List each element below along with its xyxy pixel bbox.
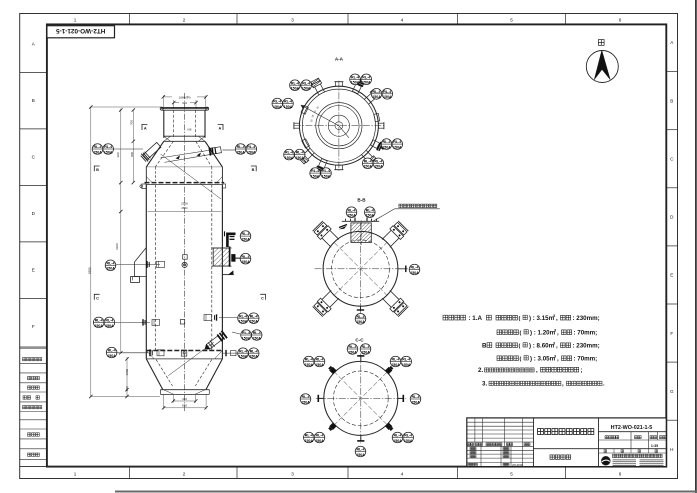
svg-text:H: H <box>670 447 673 452</box>
svg-text:3: 3 <box>553 341 555 345</box>
svg-text:;: ; <box>581 368 583 374</box>
svg-text:: 70mm;: : 70mm; <box>574 330 598 337</box>
svg-text:) : 3.15m: ) : 3.15m <box>529 315 555 322</box>
svg-text:) : 8.60m: ) : 8.60m <box>529 343 555 350</box>
svg-text:E: E <box>670 273 673 278</box>
svg-text:3: 3 <box>554 328 556 332</box>
svg-text:(: ( <box>520 331 522 337</box>
svg-text:390: 390 <box>116 152 120 157</box>
svg-text:3.: 3. <box>482 381 487 388</box>
svg-text:: 1.A: : 1.A <box>469 315 483 322</box>
svg-text:(: ( <box>520 357 522 363</box>
svg-text:5: 5 <box>510 471 513 476</box>
svg-text:M8: M8 <box>188 128 192 132</box>
svg-text:: 230mm;: : 230mm; <box>573 343 600 350</box>
svg-text:) : 1.20m: ) : 1.20m <box>530 330 556 337</box>
svg-text:2: 2 <box>183 471 186 476</box>
svg-text:4: 4 <box>401 471 404 476</box>
svg-text:1:35: 1:35 <box>651 444 658 448</box>
svg-text:) : 3.05m: ) : 3.05m <box>530 356 556 363</box>
svg-text:5: 5 <box>510 18 513 23</box>
svg-text:3: 3 <box>554 354 556 358</box>
svg-text:C: C <box>96 297 99 301</box>
svg-text:3: 3 <box>291 471 294 476</box>
svg-text:(: ( <box>519 344 521 350</box>
svg-text:B: B <box>670 98 673 103</box>
svg-text:800: 800 <box>130 152 134 157</box>
svg-text:700: 700 <box>130 120 134 125</box>
svg-text:C: C <box>261 297 264 301</box>
svg-text:8555: 8555 <box>88 267 92 274</box>
svg-text:B: B <box>252 168 255 172</box>
svg-text:430: 430 <box>182 397 187 401</box>
svg-text:430: 430 <box>182 101 187 105</box>
svg-text:,: , <box>556 315 558 322</box>
svg-text:,: , <box>556 343 558 350</box>
svg-text:A: A <box>219 127 222 131</box>
svg-text:2013006: 2013006 <box>512 463 523 467</box>
svg-text:4: 4 <box>401 18 404 23</box>
svg-text:,: , <box>557 330 559 337</box>
svg-text:6: 6 <box>619 471 622 476</box>
svg-text:(: ( <box>519 316 521 322</box>
svg-text:: 230mm;: : 230mm; <box>573 315 600 322</box>
svg-text:B: B <box>482 343 487 350</box>
svg-text:B: B <box>96 168 99 172</box>
svg-text:,: , <box>557 356 559 363</box>
svg-text:630: 630 <box>182 404 187 408</box>
svg-text:C-C: C-C <box>355 338 364 343</box>
svg-text:F: F <box>32 324 35 329</box>
svg-text:6: 6 <box>619 18 622 23</box>
svg-text:HT2-WO-021-1-5: HT2-WO-021-1-5 <box>56 27 106 34</box>
svg-text:G: G <box>670 389 674 394</box>
svg-text:1: 1 <box>74 18 77 23</box>
svg-text:2.: 2. <box>478 367 483 374</box>
svg-text:HT2-WO-021-1-5: HT2-WO-021-1-5 <box>611 425 653 431</box>
svg-text:B: B <box>32 98 35 103</box>
svg-text:A: A <box>144 127 147 131</box>
svg-text:2604: 2604 <box>181 206 188 210</box>
svg-text:A-A: A-A <box>335 57 344 62</box>
svg-text:1: 1 <box>74 471 77 476</box>
svg-text:F: F <box>670 331 673 336</box>
svg-text:3: 3 <box>291 18 294 23</box>
svg-text:1000: 1000 <box>125 368 129 375</box>
svg-text:3: 3 <box>553 314 555 318</box>
svg-text:E: E <box>32 268 35 273</box>
svg-text:150: 150 <box>125 386 129 391</box>
svg-text:B-B: B-B <box>357 198 366 203</box>
svg-text:: 70mm;: : 70mm; <box>574 356 598 363</box>
svg-text:2: 2 <box>183 18 186 23</box>
svg-text:3300: 3300 <box>115 243 119 250</box>
svg-text:1084(中): 1084(中) <box>178 94 190 99</box>
